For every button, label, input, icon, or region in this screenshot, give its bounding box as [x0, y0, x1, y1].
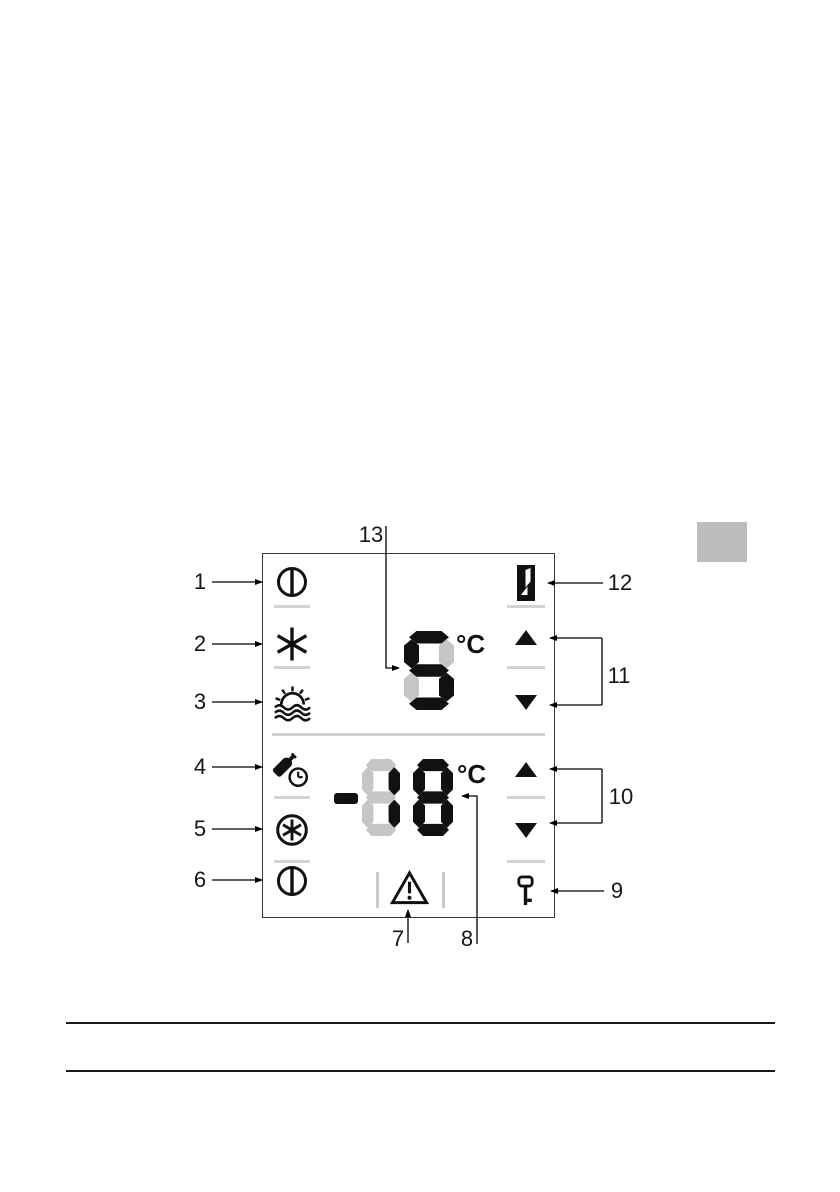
- freezer-temp-unit: °C: [457, 761, 486, 787]
- callout-label-6: 6: [194, 869, 206, 891]
- section-marker: [697, 522, 747, 562]
- key-lock-icon: [516, 874, 535, 908]
- callout-label-2: 2: [194, 633, 206, 655]
- door-open-icon: [517, 565, 535, 601]
- separator: [507, 666, 545, 669]
- superfrost-icon: [274, 812, 310, 848]
- freezer-power-icon: [275, 864, 309, 898]
- fridge-power-icon: [275, 565, 309, 599]
- fridge-temp-up-icon: [515, 630, 537, 645]
- footer-rule-top: [66, 1022, 775, 1024]
- callout-label-3: 3: [194, 691, 206, 713]
- separator: [274, 796, 310, 799]
- callout-label-4: 4: [194, 756, 206, 778]
- separator: [507, 605, 545, 608]
- manual-page: °C °C: [0, 0, 840, 1192]
- footer-rule-bottom: [66, 1070, 775, 1072]
- freezer-minus-sign: [334, 793, 358, 804]
- callout-label-1: 1: [194, 571, 206, 593]
- alarm-icon: [390, 870, 429, 906]
- fridge-temp-display: [404, 631, 454, 710]
- display-segment-bar: [376, 872, 379, 908]
- fridge-temp-down-icon: [515, 695, 537, 710]
- callout-label-9: 9: [611, 880, 623, 902]
- callout-label-8: 8: [461, 928, 473, 950]
- callout-label-12: 12: [608, 572, 632, 594]
- separator: [507, 860, 545, 863]
- separator: [507, 796, 545, 799]
- freezer-temp-display-digit2: [413, 759, 453, 836]
- callout-label-11: 11: [608, 665, 631, 687]
- freezer-temp-down-icon: [515, 823, 537, 838]
- freezer-temp-display-digit1: [362, 759, 400, 836]
- callout-label-13: 13: [359, 524, 383, 546]
- separator: [274, 860, 310, 863]
- panel-divider: [272, 733, 545, 736]
- bottle-timer-icon: [271, 749, 313, 791]
- callout-label-10: 10: [609, 786, 633, 808]
- separator: [274, 605, 310, 608]
- freezer-temp-up-icon: [515, 762, 537, 777]
- callout-label-5: 5: [194, 818, 206, 840]
- holiday-icon: [271, 684, 314, 723]
- display-segment-bar: [442, 872, 445, 908]
- fridge-temp-unit: °C: [456, 631, 485, 657]
- callout-label-7: 7: [392, 928, 404, 950]
- separator: [274, 666, 310, 669]
- supercool-icon: [274, 626, 310, 662]
